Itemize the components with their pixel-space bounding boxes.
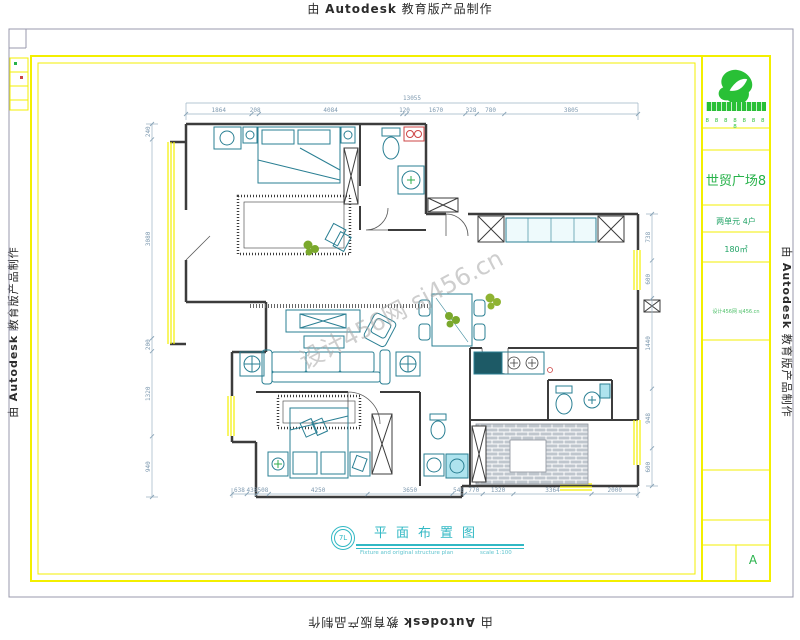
table-flower — [445, 312, 460, 328]
svg-text:3364: 3364 — [545, 487, 560, 494]
potted-plant-hall — [304, 241, 320, 256]
dim-bottom-numbers: 63843850842503650540770132033642000 — [230, 487, 640, 496]
potted-plant-right — [486, 294, 502, 310]
svg-text:1670: 1670 — [429, 107, 444, 114]
side-table-right — [396, 352, 420, 376]
washing-machine — [446, 454, 468, 478]
svg-text:3650: 3650 — [403, 487, 418, 494]
svg-text:770: 770 — [468, 487, 479, 494]
tiled-floor — [476, 424, 588, 484]
dim-right-numbers: 7386001440948600 — [645, 212, 654, 488]
master-bed — [258, 127, 340, 183]
coffee-table — [304, 336, 344, 348]
bathroom-shelf — [404, 127, 424, 141]
drawing-frame — [31, 56, 702, 581]
svg-text:2000: 2000 — [608, 487, 623, 494]
bedroom-rug — [238, 196, 353, 254]
svg-text:948: 948 — [645, 413, 652, 424]
vanity — [214, 127, 241, 149]
svg-text:3805: 3805 — [564, 107, 579, 114]
balcony-closet — [472, 426, 486, 482]
area-label: 180㎡ — [702, 244, 770, 255]
svg-text:600: 600 — [645, 461, 652, 472]
svg-text:1864: 1864 — [212, 107, 227, 114]
bed-bottom — [290, 408, 348, 478]
cad-sheet: 由 Autodesk 教育版产品制作 由 Autodesk 教育版产品制作 由 … — [0, 0, 800, 640]
bathroom-2 — [424, 414, 446, 476]
dining-closet — [478, 216, 624, 242]
svg-text:940: 940 — [145, 461, 152, 472]
lounge-chair — [363, 312, 397, 348]
svg-text:1320: 1320 — [491, 487, 506, 494]
tv-cabinet — [286, 310, 360, 332]
sofa — [262, 350, 390, 384]
svg-text:1320: 1320 — [145, 386, 152, 401]
titleblock-note: 设计456网 sj456.cn — [702, 308, 770, 315]
sheet-letter: A — [736, 553, 770, 567]
svg-text:738: 738 — [645, 231, 652, 242]
plan-title: 平面布置图 — [374, 522, 484, 541]
nightstand-left — [243, 127, 257, 143]
svg-text:328: 328 — [466, 107, 477, 114]
plan-subtitle: Fixture and original structure plan — [360, 550, 453, 556]
caption-bubble: 7L — [331, 526, 355, 550]
side-table-left — [240, 352, 264, 376]
svg-text:120: 120 — [399, 107, 410, 114]
caption-rule — [356, 544, 524, 546]
dim-total-top: 13055 — [403, 95, 421, 102]
title-block-grid — [702, 56, 770, 581]
svg-text:3080: 3080 — [145, 231, 152, 246]
revision-cells — [10, 58, 28, 110]
stove — [508, 357, 553, 373]
svg-text:638: 638 — [234, 487, 245, 494]
svg-text:200: 200 — [145, 339, 152, 350]
nightstand-b-right — [350, 452, 370, 476]
company-banner — [706, 102, 766, 111]
svg-text:1440: 1440 — [645, 336, 652, 351]
nightstand-b-left — [268, 452, 288, 476]
caption-rule-thin — [356, 548, 524, 549]
nightstand-right — [341, 127, 355, 143]
company-phone: 8 8 8 8 8 8 8 8 — [702, 118, 770, 130]
svg-text:508: 508 — [257, 487, 268, 494]
dim-left-numbers: 24030802001320940 — [145, 122, 154, 499]
dim-top-numbers: 1864208408412016703287803805 — [184, 107, 640, 116]
svg-text:540: 540 — [453, 487, 464, 494]
bathroom-3 — [556, 384, 610, 414]
svg-text:4084: 4084 — [323, 107, 338, 114]
plan-scale: scale 1:100 — [480, 550, 512, 556]
svg-text:600: 600 — [645, 273, 652, 284]
svg-text:780: 780 — [485, 107, 496, 114]
wardrobe-bottom — [372, 414, 392, 474]
project-name: 世贸广场8 — [702, 170, 770, 189]
svg-text:4250: 4250 — [311, 487, 326, 494]
unit-label: 两单元 4户 — [702, 216, 770, 227]
svg-text:240: 240 — [145, 126, 152, 137]
